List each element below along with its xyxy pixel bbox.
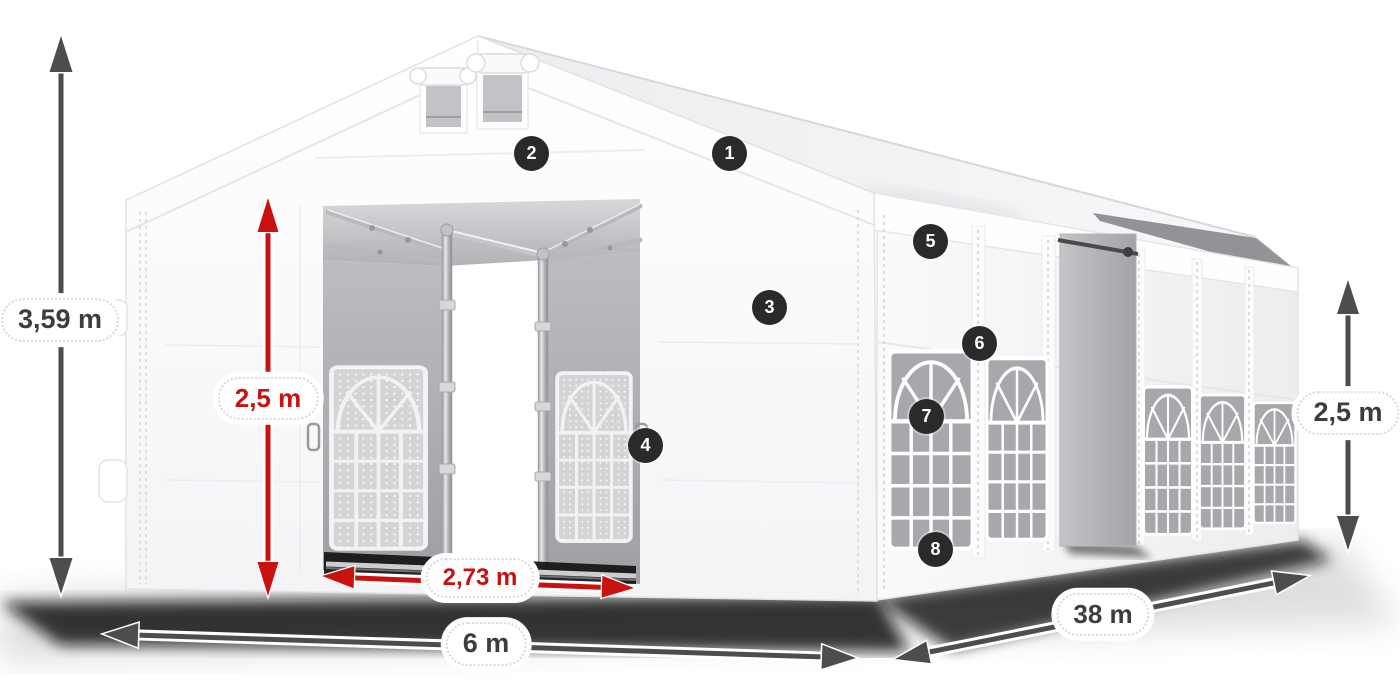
marker-3[interactable]: 3: [752, 290, 787, 325]
dimension-label-side-height: 2,5 m: [1296, 391, 1399, 435]
marker-1[interactable]: 1: [712, 136, 747, 171]
marker-number: 5: [925, 231, 935, 252]
dimension-label-door-width: 2,73 m: [426, 558, 535, 598]
tent-dimension-diagram: 3,59 m 2,5 m 2,73 m 6 m 38 m 2,5 m 1 2 3…: [0, 0, 1400, 700]
dimension-value: 38 m: [1073, 599, 1132, 629]
marker-number: 7: [921, 406, 931, 427]
marker-number: 4: [640, 435, 650, 456]
dimension-value: 2,5 m: [1313, 397, 1382, 427]
dimension-label-door-height: 2,5 m: [218, 377, 319, 420]
marker-4[interactable]: 4: [628, 428, 663, 463]
marker-6[interactable]: 6: [962, 326, 997, 361]
dimension-label-total-height: 3,59 m: [1, 298, 119, 342]
marker-number: 1: [724, 143, 734, 164]
marker-number: 8: [930, 539, 940, 560]
dimension-label-width: 6 m: [446, 622, 527, 666]
dimension-value: 2,5 m: [235, 383, 302, 413]
marker-number: 6: [974, 333, 984, 354]
dimension-arrows: [0, 0, 1400, 700]
marker-7[interactable]: 7: [909, 399, 944, 434]
marker-2[interactable]: 2: [514, 136, 549, 171]
marker-number: 2: [526, 143, 536, 164]
dimension-value: 3,59 m: [18, 304, 102, 334]
dimension-value: 6 m: [463, 628, 510, 658]
dimension-value: 2,73 m: [443, 564, 518, 591]
marker-5[interactable]: 5: [913, 224, 948, 259]
marker-8[interactable]: 8: [918, 532, 953, 567]
dimension-label-length: 38 m: [1056, 593, 1149, 636]
marker-number: 3: [764, 297, 774, 318]
